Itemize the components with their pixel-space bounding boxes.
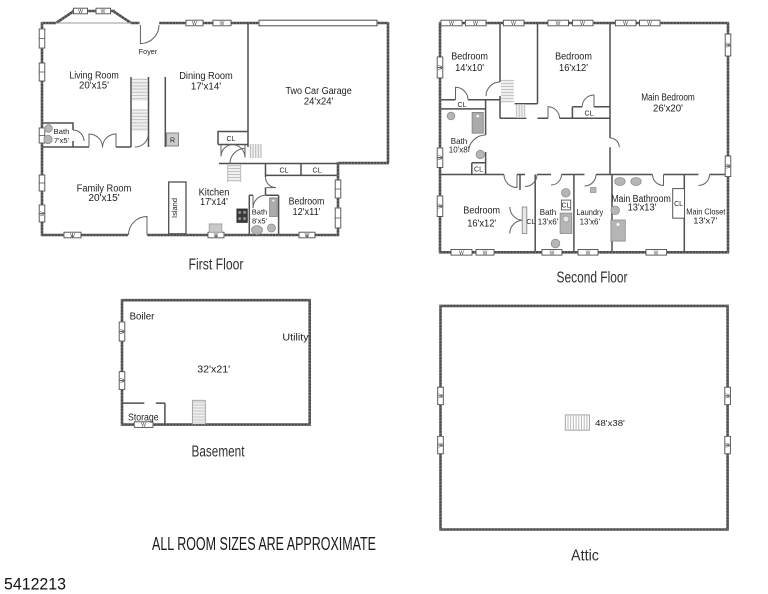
svg-text:32'x21': 32'x21' <box>197 365 230 376</box>
svg-text:26'x20': 26'x20' <box>653 104 683 115</box>
svg-text:CL: CL <box>474 167 483 174</box>
svg-text:17'x14': 17'x14' <box>191 81 221 92</box>
svg-text:W: W <box>449 21 454 27</box>
svg-text:CL: CL <box>458 102 467 109</box>
svg-text:CL: CL <box>562 203 571 210</box>
svg-text:Second Floor: Second Floor <box>557 270 628 287</box>
svg-text:Bath: Bath <box>54 127 70 136</box>
svg-text:Bedroom: Bedroom <box>451 52 488 63</box>
svg-text:16'x12': 16'x12' <box>467 219 496 230</box>
svg-text:Bedroom: Bedroom <box>555 52 592 63</box>
svg-text:CL: CL <box>227 136 236 143</box>
svg-text:Attic: Attic <box>571 548 599 565</box>
svg-text:16'x12': 16'x12' <box>559 63 588 74</box>
svg-text:13'x6': 13'x6' <box>538 217 559 226</box>
svg-text:W: W <box>550 251 555 257</box>
svg-text:Utility: Utility <box>282 333 308 344</box>
svg-text:First Floor: First Floor <box>189 257 244 274</box>
svg-text:Bath: Bath <box>252 208 267 217</box>
svg-text:Laundry: Laundry <box>576 208 603 217</box>
svg-text:20'x15': 20'x15' <box>79 80 109 91</box>
svg-text:48'x38': 48'x38' <box>595 418 625 428</box>
svg-text:13'x6': 13'x6' <box>580 217 601 226</box>
svg-text:8'x5': 8'x5' <box>252 217 268 226</box>
svg-text:Bath: Bath <box>540 208 556 217</box>
svg-text:Foyer: Foyer <box>139 49 158 56</box>
svg-text:CL: CL <box>526 219 535 226</box>
svg-text:12'x11': 12'x11' <box>293 207 321 218</box>
svg-text:7'x5': 7'x5' <box>54 136 70 145</box>
svg-text:13'x13': 13'x13' <box>628 203 657 214</box>
svg-text:Basement: Basement <box>192 443 246 460</box>
svg-text:ALL ROOM SIZES ARE APPROXIMATE: ALL ROOM SIZES ARE APPROXIMATE <box>152 534 376 554</box>
svg-text:CL: CL <box>313 168 322 175</box>
svg-text:W: W <box>473 21 478 27</box>
svg-text:Bedroom: Bedroom <box>289 197 325 208</box>
svg-text:20'x15': 20'x15' <box>88 193 119 204</box>
svg-text:R: R <box>170 138 175 145</box>
svg-text:17'x14': 17'x14' <box>200 197 228 208</box>
svg-text:CL: CL <box>585 111 594 118</box>
svg-text:W: W <box>483 251 488 257</box>
svg-text:Bedroom: Bedroom <box>463 206 500 217</box>
svg-text:5412213: 5412213 <box>4 575 66 594</box>
svg-text:Main Bedroom: Main Bedroom <box>641 92 695 103</box>
svg-text:24'x24': 24'x24' <box>304 96 333 107</box>
svg-text:CL: CL <box>674 201 683 208</box>
svg-text:Storage: Storage <box>128 413 159 424</box>
svg-text:14'x10': 14'x10' <box>455 63 484 74</box>
svg-text:Boiler: Boiler <box>130 312 155 323</box>
svg-text:Island: Island <box>170 198 179 218</box>
svg-text:13'x7': 13'x7' <box>693 216 717 226</box>
svg-text:10'x8': 10'x8' <box>449 146 470 155</box>
svg-text:CL: CL <box>280 168 289 175</box>
